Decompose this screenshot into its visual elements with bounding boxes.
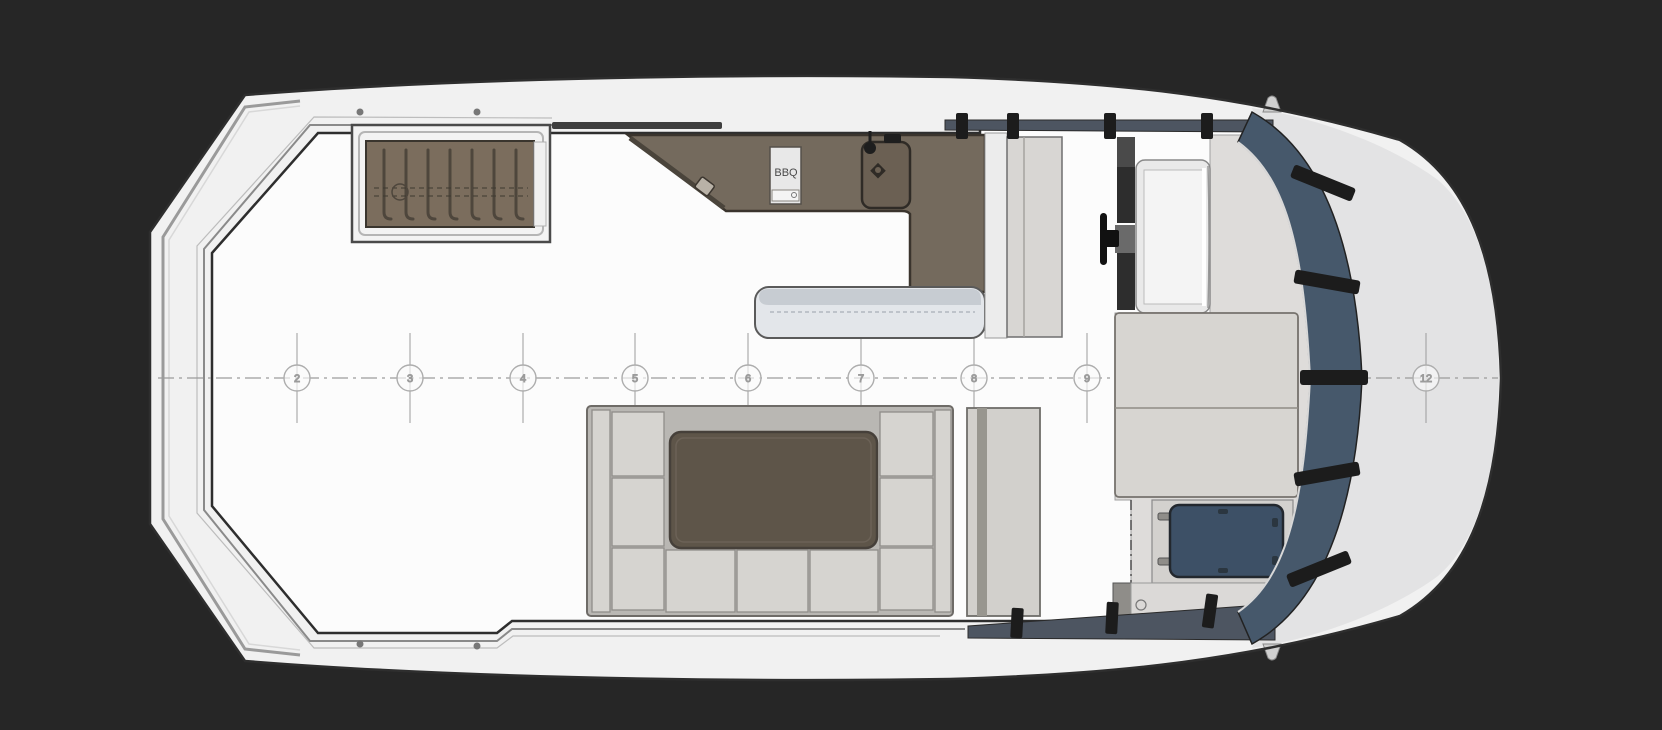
skylight-hatch-icon [1170, 505, 1283, 577]
sunpad-icon [1115, 313, 1298, 497]
stairway-landing [534, 142, 546, 226]
station-number: 3 [407, 373, 413, 385]
hardtop-rail-strip [552, 122, 722, 129]
deck-plan-canvas: 2345678912 B [0, 0, 1662, 730]
bbq-label: BBQ [774, 167, 798, 179]
sofa-side-panel [967, 408, 1040, 616]
bbq-grill-icon: BBQ [770, 147, 801, 204]
station-number: 7 [858, 373, 864, 385]
stanchion-dot [474, 109, 481, 116]
helm-cabinet [1007, 137, 1062, 337]
station-number: 4 [520, 373, 526, 385]
station-number: 2 [294, 373, 300, 385]
station-number: 12 [1420, 373, 1432, 385]
station-number: 9 [1084, 373, 1090, 385]
station-number: 6 [745, 373, 751, 385]
deck-plan-drawing: 2345678912 B [0, 0, 1662, 730]
helm-console-icon [1136, 160, 1210, 313]
skylight-hatch [1131, 500, 1293, 583]
station-number: 5 [632, 373, 638, 385]
side-divider [985, 133, 1007, 338]
bench-backrest [759, 289, 981, 305]
cockpit-table-icon [670, 432, 877, 548]
stanchion-dot [357, 109, 364, 116]
bench-seat-icon [755, 287, 985, 338]
station-number: 8 [971, 373, 977, 385]
stanchion-dot [474, 643, 481, 650]
stairway [352, 125, 550, 242]
stanchion-dot [357, 641, 364, 648]
